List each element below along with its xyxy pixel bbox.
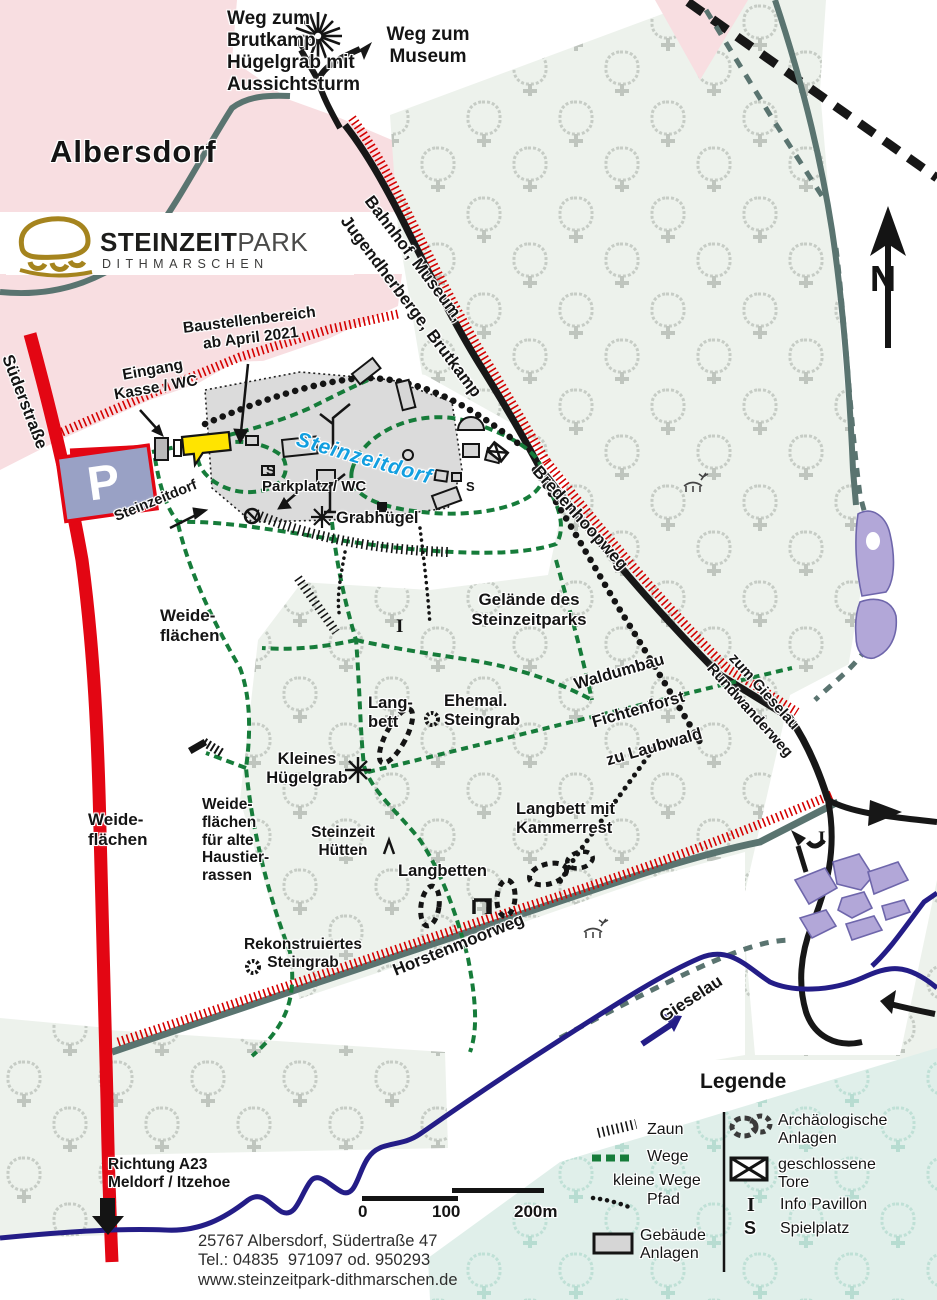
label-weideflaechen-2: Weide- flächen bbox=[88, 810, 148, 849]
label-langbett-kammerrest: Langbett mit Kammerrest bbox=[516, 800, 615, 838]
label-langbetten: Langbetten bbox=[398, 862, 487, 881]
legend-label-wege: Wege bbox=[647, 1148, 689, 1166]
address-line3: www.steinzeitpark-dithmarschen.de bbox=[198, 1271, 458, 1289]
logo-wordmark: STEINZEITPARK bbox=[100, 228, 308, 258]
scale-label-0: 0 bbox=[358, 1202, 367, 1222]
address-line2: Tel.: 04835 971097 od. 950293 bbox=[198, 1251, 430, 1269]
pasture-gate-icon bbox=[188, 739, 222, 754]
label-weg-zum-museum: Weg zum Museum bbox=[380, 24, 476, 68]
north-letter: N bbox=[870, 258, 896, 299]
scale-label-100: 100 bbox=[432, 1202, 460, 1222]
address-block: 25767 Albersdorf, Südertraße 47Tel.: 048… bbox=[198, 1232, 458, 1290]
spielplatz-icon-1: S bbox=[266, 462, 275, 478]
legend-title: Legende bbox=[700, 1070, 786, 1094]
logo-part1: STEINZEIT bbox=[100, 227, 237, 257]
label-kleines-huegelgrab: Kleines Hügelgrab bbox=[252, 750, 362, 788]
label-weideflaechen-haustierrassen: Weide- flächen für alte Haustier- rassen bbox=[202, 796, 269, 885]
label-langbett: Lang- bett bbox=[368, 694, 413, 732]
label-town-albersdorf: Albersdorf bbox=[50, 134, 217, 170]
logo-subtitle: DITHMARSCHEN bbox=[102, 257, 269, 271]
info-pavillon-icon-3: I bbox=[818, 828, 825, 850]
legend-label-pfad: Pfad bbox=[647, 1191, 680, 1209]
label-rekonstruiertes-steingrab: Rekonstruiertes Steingrab bbox=[236, 936, 370, 972]
legend-label-spielplatz: Spielplatz bbox=[780, 1220, 849, 1238]
legend-label-zaun: Zaun bbox=[647, 1121, 683, 1139]
legend-label-tore: geschlossene Tore bbox=[778, 1156, 876, 1193]
legend-label-gebaeude: Gebäude Anlagen bbox=[640, 1227, 706, 1264]
logo-part2: PARK bbox=[237, 227, 308, 257]
legend-icon-spielplatz: S bbox=[744, 1218, 756, 1239]
legend-icon-info: I bbox=[747, 1194, 755, 1217]
label-ehemal-steingrab: Ehemal. Steingrab bbox=[444, 692, 520, 730]
label-gelaende: Gelände des Steinzeitparks bbox=[464, 590, 594, 629]
info-pavillon-icon-1: I bbox=[396, 616, 403, 638]
label-steinzeit-huetten: Steinzeit Hütten bbox=[308, 824, 378, 860]
label-parkplatz-wc: Parkplatz / WC bbox=[262, 478, 366, 495]
spielplatz-icon-2: S bbox=[466, 480, 475, 495]
legend-label-archaeologische: Archäologische Anlagen bbox=[778, 1112, 887, 1149]
info-pavillon-icon-2: I bbox=[484, 898, 491, 920]
legend-label-kleine-wege: kleine Wege bbox=[613, 1172, 701, 1190]
address-line1: 25767 Albersdorf, Südertraße 47 bbox=[198, 1232, 437, 1250]
grabhuegel-star bbox=[311, 506, 333, 528]
scale-label-200m: 200m bbox=[514, 1202, 557, 1222]
map-artwork bbox=[0, 0, 937, 1300]
label-weg-zum-brutkamp: Weg zum Brutkamp Hügelgrab mit Aussichts… bbox=[227, 8, 360, 95]
park-map: Weg zum Brutkamp Hügelgrab mit Aussichts… bbox=[0, 0, 937, 1300]
label-richtung-a23: Richtung A23 Meldorf / Itzehoe bbox=[108, 1156, 230, 1192]
label-weideflaechen-1: Weide- flächen bbox=[160, 606, 220, 645]
label-grabhuegel: Grabhügel bbox=[336, 509, 419, 528]
legend-label-info-pavillon: Info Pavillon bbox=[780, 1196, 867, 1214]
